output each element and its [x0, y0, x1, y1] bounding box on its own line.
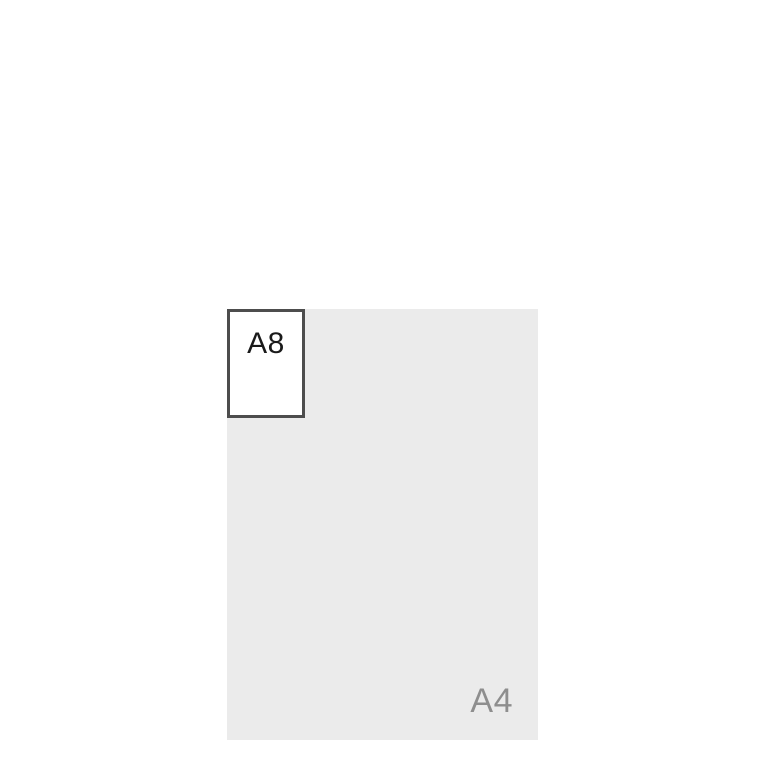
- a8-sheet: A8: [227, 309, 305, 418]
- a8-label: A8: [247, 329, 285, 359]
- a4-label: A4: [470, 684, 513, 718]
- paper-size-diagram: A4 A8: [0, 0, 765, 765]
